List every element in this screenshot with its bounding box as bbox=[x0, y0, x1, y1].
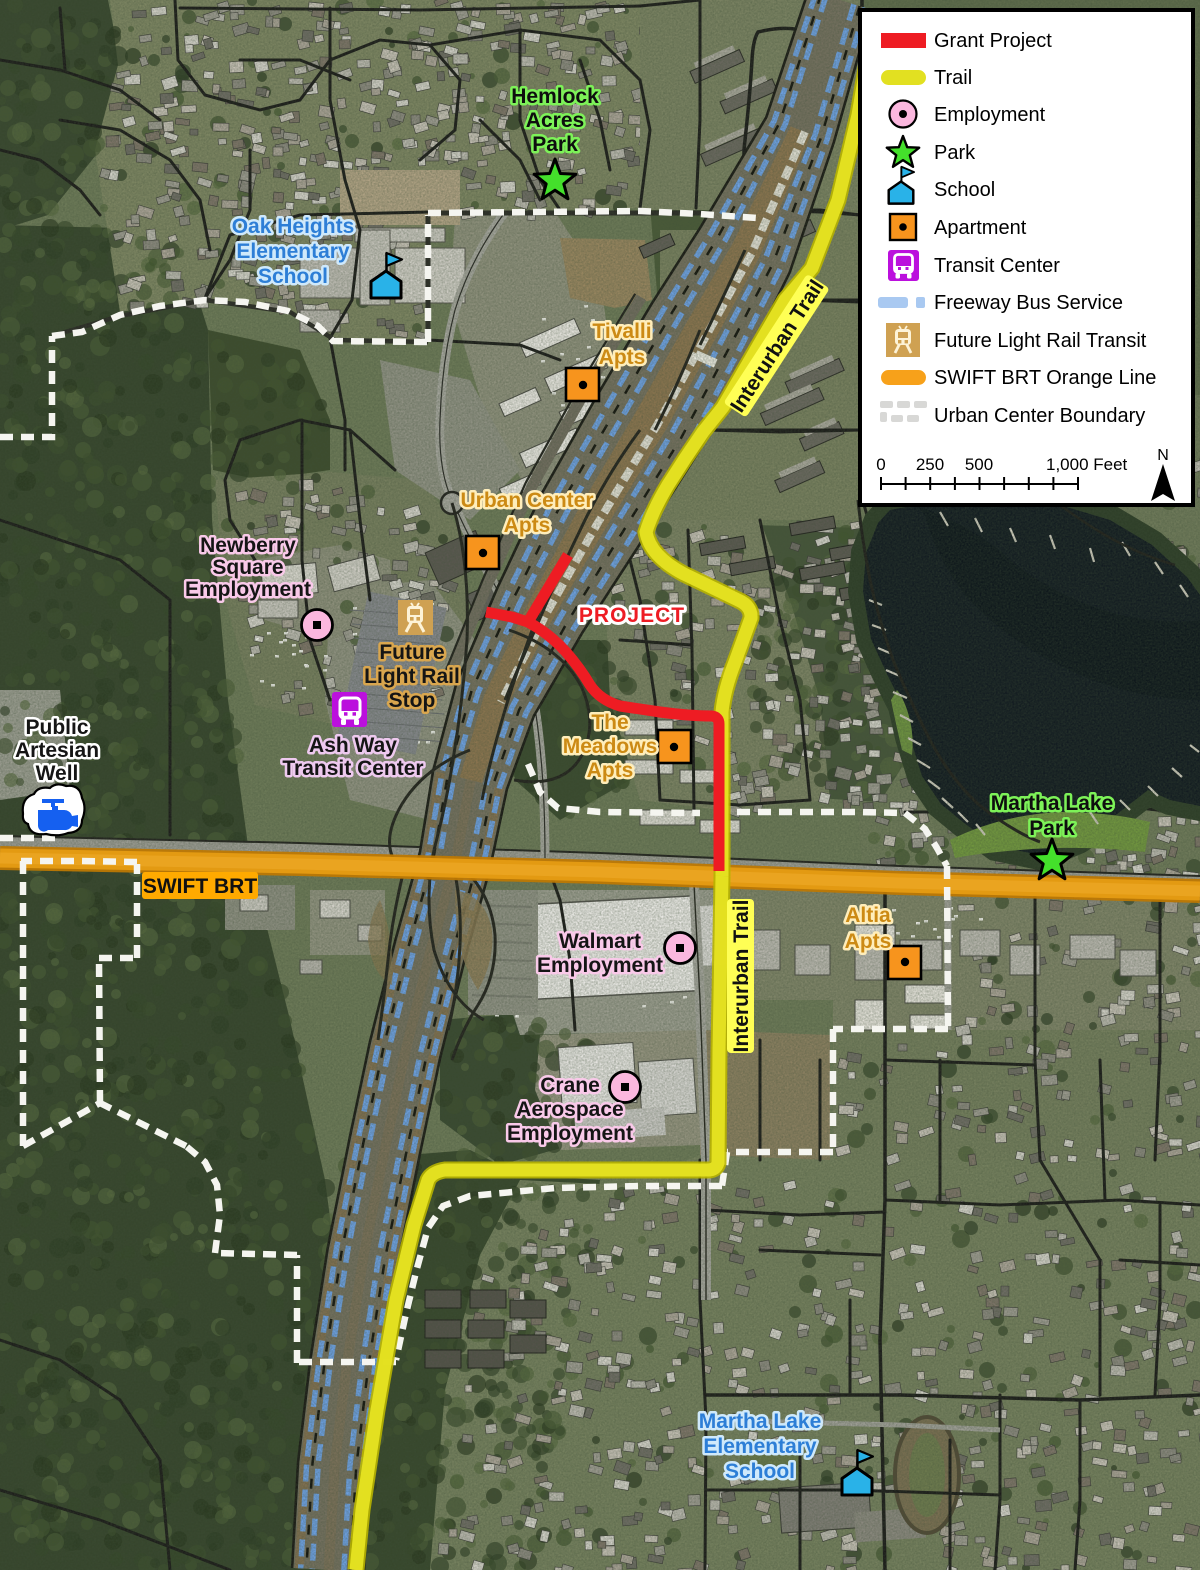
svg-text:0: 0 bbox=[876, 455, 885, 474]
svg-text:Altia: Altia bbox=[845, 904, 891, 927]
svg-text:Square: Square bbox=[212, 556, 283, 579]
svg-text:Meadows: Meadows bbox=[563, 735, 658, 758]
svg-text:School: School bbox=[934, 179, 995, 201]
svg-text:Martha Lake: Martha Lake bbox=[991, 792, 1114, 815]
svg-text:Employment: Employment bbox=[537, 954, 663, 977]
svg-text:Urban Center Boundary: Urban Center Boundary bbox=[934, 405, 1145, 427]
svg-text:250: 250 bbox=[916, 455, 944, 474]
svg-text:500: 500 bbox=[965, 455, 993, 474]
svg-text:Urban Center: Urban Center bbox=[460, 489, 593, 512]
svg-text:PROJECT: PROJECT bbox=[579, 604, 685, 627]
svg-text:Apts: Apts bbox=[845, 930, 892, 953]
svg-text:Apts: Apts bbox=[599, 346, 646, 369]
svg-text:Artesian: Artesian bbox=[15, 739, 99, 762]
svg-text:Tivalli: Tivalli bbox=[592, 320, 651, 343]
svg-text:Light Rail: Light Rail bbox=[364, 665, 460, 688]
svg-text:Future Light Rail Transit: Future Light Rail Transit bbox=[934, 330, 1147, 352]
svg-text:Aerospace: Aerospace bbox=[516, 1098, 623, 1121]
svg-text:Employment: Employment bbox=[507, 1122, 633, 1145]
svg-text:SWIFT BRT Orange Line: SWIFT BRT Orange Line bbox=[934, 367, 1156, 389]
svg-text:The: The bbox=[591, 711, 628, 734]
svg-text:Stop: Stop bbox=[389, 689, 436, 712]
svg-text:Public: Public bbox=[25, 716, 88, 739]
svg-text:Employment: Employment bbox=[934, 104, 1046, 126]
svg-text:Park: Park bbox=[934, 142, 976, 164]
svg-text:Apts: Apts bbox=[504, 514, 551, 537]
svg-text:1,000 Feet: 1,000 Feet bbox=[1046, 455, 1128, 474]
svg-text:Acres: Acres bbox=[526, 109, 584, 132]
svg-text:Newberry: Newberry bbox=[200, 534, 296, 557]
svg-text:Apartment: Apartment bbox=[934, 217, 1027, 239]
svg-text:Transit Center: Transit Center bbox=[282, 757, 423, 780]
svg-text:School: School bbox=[725, 1460, 795, 1483]
svg-text:Future: Future bbox=[379, 641, 444, 664]
svg-text:Hemlock: Hemlock bbox=[511, 85, 599, 108]
svg-text:Employment: Employment bbox=[185, 578, 311, 601]
svg-text:Trail: Trail bbox=[934, 67, 972, 89]
svg-text:Well: Well bbox=[36, 762, 79, 785]
svg-text:Martha Lake: Martha Lake bbox=[699, 1410, 822, 1433]
svg-text:Grant Project: Grant Project bbox=[934, 30, 1052, 52]
svg-text:Elementary: Elementary bbox=[703, 1435, 817, 1458]
svg-text:Walmart: Walmart bbox=[559, 930, 641, 953]
svg-text:Freeway Bus Service: Freeway Bus Service bbox=[934, 292, 1123, 314]
svg-text:Crane: Crane bbox=[540, 1074, 600, 1097]
svg-text:Interurban Trail: Interurban Trail bbox=[730, 900, 753, 1053]
svg-text:School: School bbox=[258, 265, 328, 288]
svg-text:Ash Way: Ash Way bbox=[309, 734, 397, 757]
svg-text:SWIFT BRT: SWIFT BRT bbox=[143, 875, 257, 898]
svg-text:N: N bbox=[1157, 447, 1169, 464]
svg-text:Park: Park bbox=[1029, 817, 1075, 840]
svg-text:Elementary: Elementary bbox=[236, 240, 350, 263]
svg-text:Apts: Apts bbox=[587, 759, 634, 782]
svg-text:Park: Park bbox=[532, 133, 578, 156]
svg-text:Transit Center: Transit Center bbox=[934, 255, 1060, 277]
svg-text:Oak Heights: Oak Heights bbox=[232, 215, 355, 238]
